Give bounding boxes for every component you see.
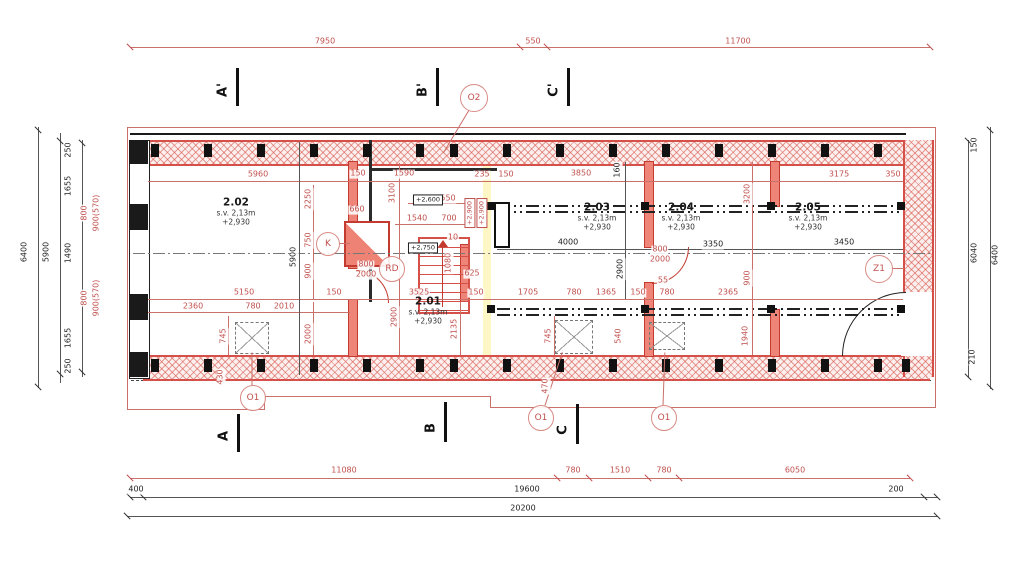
- dim-label: +2,900: [476, 198, 487, 228]
- dim-label: 745: [220, 327, 229, 344]
- dimension-line: [38, 127, 39, 388]
- roof-window-box: [555, 320, 593, 354]
- dim-label: 2365: [717, 289, 739, 298]
- dim-label: 20200: [509, 505, 536, 514]
- dim-label: 780: [244, 303, 261, 312]
- room-elevation: +2,930: [662, 223, 701, 232]
- room-height: s.v. 2,13m: [217, 209, 256, 218]
- roof-window-box: [649, 322, 685, 350]
- callout-o1: O1: [528, 405, 554, 431]
- dim-label: 660: [348, 206, 365, 215]
- callout-o1: O1: [651, 405, 677, 431]
- left-wall-pier: [129, 140, 148, 164]
- floor-plan-canvas: 7950550117006400590025016551490165525080…: [0, 0, 1024, 576]
- room-number: 2.05: [789, 202, 828, 214]
- section-bar-C: [576, 404, 579, 444]
- wall-post: [874, 144, 882, 157]
- wall-post: [874, 359, 882, 372]
- dimension-line: [148, 312, 350, 313]
- dim-label: 6400: [992, 244, 1001, 266]
- dim-label: 150: [467, 289, 484, 298]
- wall-post: [363, 144, 371, 157]
- roof-window-box: [235, 322, 269, 354]
- knee-anchor: [641, 305, 649, 313]
- dimension-line: [299, 142, 300, 375]
- wall-post: [609, 144, 617, 157]
- outline-bottom-mid: [264, 396, 490, 397]
- room-label: 2.03s.v. 2,13m+2,930: [578, 202, 617, 233]
- dim-label: 800: [357, 261, 374, 270]
- knee-anchor: [487, 305, 495, 313]
- dim-label: 2000: [355, 271, 377, 280]
- wall-post: [310, 144, 318, 157]
- room-height: s.v. 2,13m: [662, 214, 701, 223]
- section-label-B: B: [424, 423, 439, 433]
- dim-label: 350: [884, 171, 901, 180]
- section-bar-Bp: [436, 68, 439, 106]
- dim-label: 1940: [742, 325, 751, 347]
- dim-label: 3450: [833, 239, 855, 248]
- wall-post: [821, 144, 829, 157]
- dim-label: 2000: [305, 323, 314, 345]
- wall-post: [204, 144, 212, 157]
- dim-label: 625: [463, 270, 480, 279]
- dim-label: 5900: [43, 241, 52, 263]
- dim-label: 800: [651, 246, 668, 255]
- section-bar-Cp: [567, 68, 570, 106]
- outline-bottom-right: [490, 407, 935, 408]
- dim-label: 2000: [649, 256, 671, 265]
- dim-label: 800: [81, 289, 90, 306]
- dim-label: +2,600: [413, 194, 443, 205]
- wall-post: [151, 144, 159, 157]
- dim-label: 150: [629, 289, 646, 298]
- outline-right: [935, 127, 936, 408]
- wall-post: [503, 359, 511, 372]
- dim-label: 540: [615, 327, 624, 344]
- dim-label: 3100: [389, 182, 398, 204]
- dim-label: 900(570): [93, 279, 102, 318]
- wall-post: [310, 359, 318, 372]
- left-wall-pier: [129, 352, 148, 377]
- room-elevation: +2,930: [217, 218, 256, 227]
- dim-label: 2250: [305, 188, 314, 210]
- dim-label: 700: [440, 215, 457, 224]
- dimension-line: [554, 316, 555, 355]
- dim-label: 5960: [247, 171, 269, 180]
- wall-post: [363, 359, 371, 372]
- dim-label: 10: [447, 234, 459, 243]
- outline-left: [127, 127, 128, 410]
- section-label-Cp: C': [547, 83, 562, 97]
- interior-wall-204-205-lower: [771, 310, 779, 356]
- room-height: s.v. 2,13m: [578, 214, 617, 223]
- dim-label: 400: [127, 486, 144, 495]
- callout-o2: O2: [460, 84, 488, 112]
- dim-label: 3175: [828, 171, 850, 180]
- dim-label: 200: [887, 486, 904, 495]
- dim-label: 1365: [595, 289, 617, 298]
- room-label: 2.02s.v. 2,13m+2,930: [217, 197, 256, 228]
- room-label: 2.05s.v. 2,13m+2,930: [789, 202, 828, 233]
- knee-anchor: [897, 202, 905, 210]
- section-label-C: C: [556, 425, 571, 435]
- dim-label: 3850: [570, 170, 592, 179]
- dim-label: 745: [545, 327, 554, 344]
- dim-label: 210: [969, 348, 978, 365]
- dim-label: 1655: [65, 175, 74, 197]
- callout-k: K: [316, 232, 340, 256]
- section-bar-Ap: [236, 68, 239, 106]
- dimension-line: [130, 478, 910, 479]
- dim-label: 3200: [744, 183, 753, 205]
- dim-label: 780: [658, 289, 675, 298]
- dimension-line: [130, 47, 930, 48]
- outline-bottom-left: [127, 409, 264, 410]
- wall-post: [609, 359, 617, 372]
- dimension-line: [460, 302, 461, 355]
- dim-label: 1510: [609, 467, 631, 476]
- knee-anchor: [641, 202, 649, 210]
- dim-label: 780: [564, 467, 581, 476]
- wall-post: [416, 359, 424, 372]
- dimension-line: [127, 516, 938, 517]
- dim-label: 150: [325, 289, 342, 298]
- dim-label: 150: [349, 170, 366, 179]
- room-elevation: +2,930: [578, 223, 617, 232]
- section-label-A: A: [217, 431, 232, 441]
- dim-label: 7950: [314, 38, 336, 47]
- knee-wall-line: [497, 308, 903, 310]
- dim-label: +2,750: [408, 242, 438, 253]
- room-height: s.v. 2,13m: [409, 308, 448, 317]
- wall-post: [450, 359, 458, 372]
- dim-label: 150: [497, 171, 514, 180]
- wall-post: [821, 359, 829, 372]
- dim-label: 250: [65, 141, 74, 158]
- interior-wall-204-205-upper: [771, 162, 779, 206]
- dim-label: 780: [655, 467, 672, 476]
- dim-label: 2135: [451, 318, 460, 340]
- wall-post: [257, 144, 265, 157]
- roof-edge-line: [130, 133, 906, 135]
- dim-label: 6050: [784, 467, 806, 476]
- section-label-Bp: B': [416, 83, 431, 97]
- section-label-Ap: A': [216, 83, 231, 97]
- dim-label: 1080: [445, 252, 454, 274]
- dim-label: 470: [542, 377, 551, 394]
- dim-label: 780: [565, 289, 582, 298]
- dimension-line: [130, 497, 938, 498]
- dim-label: 1705: [517, 289, 539, 298]
- left-wall-pier: [129, 294, 148, 320]
- outline-top: [127, 127, 935, 128]
- dim-label: 6400: [21, 241, 30, 263]
- room-number: 2.02: [217, 197, 256, 209]
- wall-post: [902, 359, 910, 372]
- wall-post: [257, 359, 265, 372]
- dimension-line: [148, 299, 903, 300]
- dimension-line: [82, 140, 83, 377]
- dim-label: 430: [217, 368, 226, 385]
- dim-label: 900(570): [93, 194, 102, 233]
- wall-post: [715, 359, 723, 372]
- room-elevation: +2,930: [789, 223, 828, 232]
- dim-label: 800: [81, 204, 90, 221]
- dim-label: 1590: [393, 170, 415, 179]
- left-wall-pier: [129, 204, 148, 230]
- callout-o1: O1: [240, 385, 266, 411]
- callout-z1: Z1: [865, 255, 893, 283]
- wall-post: [450, 144, 458, 157]
- door-leaf: [494, 202, 510, 248]
- wall-post: [556, 144, 564, 157]
- dimension-line: [497, 249, 903, 250]
- dim-label: 2360: [182, 303, 204, 312]
- dim-label: 2900: [617, 258, 626, 280]
- knee-anchor: [767, 202, 775, 210]
- dim-label: 3350: [702, 241, 724, 250]
- dim-label: +2,900: [464, 198, 475, 228]
- knee-anchor: [487, 202, 495, 210]
- wall-post: [204, 359, 212, 372]
- dim-label: 4000: [557, 239, 579, 248]
- dim-label: 250: [65, 357, 74, 374]
- wall-post: [151, 359, 159, 372]
- dim-label: 6040: [971, 242, 980, 264]
- callout-rd: RD: [379, 256, 405, 282]
- dim-label: 750: [305, 231, 314, 248]
- section-bar-A: [237, 414, 240, 452]
- dim-label: 19600: [513, 486, 540, 495]
- wall-post: [503, 144, 511, 157]
- dimension-line: [395, 224, 470, 225]
- dimension-line: [60, 133, 61, 383]
- dim-label: 550: [524, 38, 541, 47]
- dim-label: 5150: [233, 289, 255, 298]
- dimension-line: [148, 181, 903, 182]
- left-exterior-wall: [129, 140, 150, 379]
- wall-post: [768, 359, 776, 372]
- room-label: 2.01s.v. 2,13m+2,930: [409, 296, 448, 327]
- section-bar-B: [444, 402, 447, 442]
- callout-leader: [252, 353, 253, 386]
- room-label: 2.04s.v. 2,13m+2,930: [662, 202, 701, 233]
- door-arc-entrance-Z1: [842, 292, 906, 356]
- building-centerline: [133, 253, 932, 254]
- knee-wall-line: [497, 314, 903, 316]
- dim-label: 1655: [65, 327, 74, 349]
- dim-label: 150: [971, 136, 980, 153]
- wall-post: [662, 144, 670, 157]
- room-elevation: +2,930: [409, 317, 448, 326]
- dim-label: 900: [744, 269, 753, 286]
- dim-label: 1540: [406, 215, 428, 224]
- dim-label: 11080: [330, 467, 357, 476]
- knee-anchor: [767, 305, 775, 313]
- room-height: s.v. 2,13m: [789, 214, 828, 223]
- room-number: 2.03: [578, 202, 617, 214]
- interior-wall-stair-left-lower: [349, 300, 357, 356]
- dim-label: 900: [305, 262, 314, 279]
- dim-label: 2010: [273, 303, 295, 312]
- dim-label: 1490: [65, 242, 74, 264]
- dim-label: 5900: [290, 246, 299, 268]
- dim-label: 235: [473, 171, 490, 180]
- dim-label: 55: [657, 277, 669, 286]
- wall-post: [416, 144, 424, 157]
- wall-post: [768, 144, 776, 157]
- knee-anchor: [897, 305, 905, 313]
- room-number: 2.01: [409, 296, 448, 308]
- room-number: 2.04: [662, 202, 701, 214]
- dim-label: 2900: [391, 306, 400, 328]
- wall-post: [715, 144, 723, 157]
- dim-label: 160: [614, 161, 623, 178]
- dim-label: 11700: [724, 38, 751, 47]
